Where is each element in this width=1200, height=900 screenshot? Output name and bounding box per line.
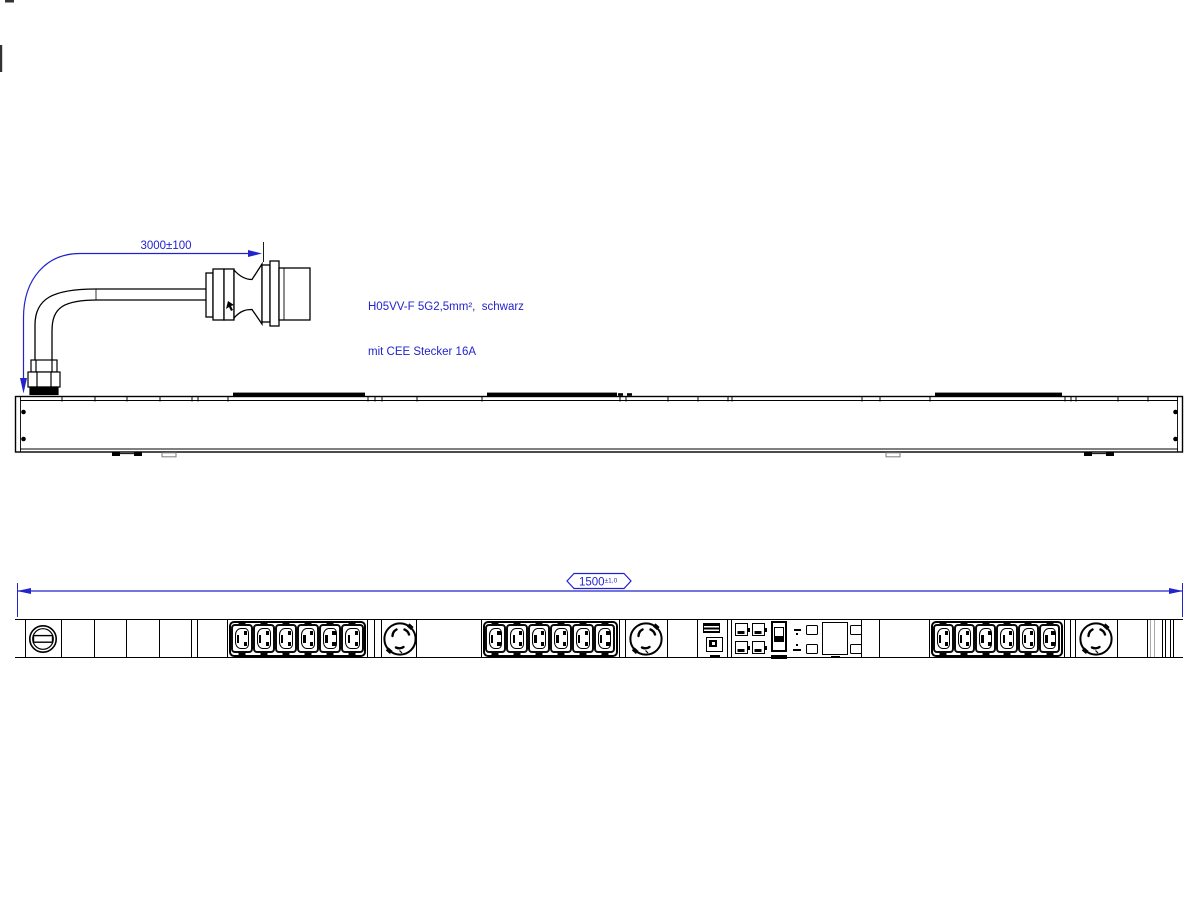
c13-group-frame [931, 621, 1063, 657]
cable-spec-line1: H05VV-F 5G2,5mm², schwarz [368, 300, 524, 315]
module-button [806, 625, 818, 635]
c13-face [510, 628, 524, 649]
c13-outlet [528, 624, 550, 653]
rj45-tab [765, 646, 767, 650]
panel-blank [862, 620, 880, 657]
c13-slot [325, 635, 327, 643]
screw-dot [21, 437, 26, 442]
c13-slot [563, 642, 566, 646]
c13-slot [988, 642, 991, 646]
c13-outlet [954, 624, 975, 653]
usb-a-port [771, 655, 787, 660]
c13-slot [281, 635, 283, 643]
c13-slot [288, 631, 291, 635]
c13-outlet [572, 624, 594, 653]
c13-face [532, 628, 546, 649]
c13-slot [606, 631, 609, 635]
c13-outlet-group [228, 620, 368, 657]
c13-face [279, 628, 293, 649]
module-button [850, 644, 862, 654]
c13-outlet [297, 624, 319, 653]
c13-slot [244, 642, 247, 646]
locking-outlet [628, 621, 664, 657]
indicator-mark [793, 649, 801, 651]
c13-face [1022, 628, 1035, 649]
display-screen [822, 622, 848, 655]
c13-slot [1045, 635, 1047, 643]
end-cap-line [1150, 620, 1151, 657]
ethernet-port [771, 621, 787, 652]
display-label [831, 656, 840, 658]
panel-blank [95, 620, 127, 657]
c13-slot [945, 631, 948, 635]
rj45-pins [738, 631, 745, 634]
c13-outlet [1039, 624, 1060, 653]
c13-slot [266, 642, 269, 646]
c13-outlet [253, 624, 275, 653]
vent-grille [703, 623, 720, 633]
c13-outlet [506, 624, 528, 653]
c13-slot [541, 631, 544, 635]
c13-face [1043, 628, 1056, 649]
c13-slot [541, 642, 544, 646]
fuse-holder [26, 622, 60, 656]
module-button [850, 625, 862, 635]
c13-outlet [231, 624, 253, 653]
c13-slot [585, 642, 588, 646]
panel-divider [375, 620, 382, 657]
c13-slot [491, 635, 493, 643]
c13-slot [1051, 642, 1054, 646]
panel-blank [1118, 620, 1148, 657]
screw-dot [1173, 410, 1178, 415]
c13-outlet [485, 624, 507, 653]
c13-slot [259, 635, 261, 643]
c13-slot [981, 635, 983, 643]
c13-slot [556, 635, 558, 643]
locking-outlet [382, 621, 416, 657]
arrowhead-right [248, 250, 262, 257]
c13-group-frame [483, 621, 618, 657]
end-cap-line [1154, 620, 1155, 657]
ethernet-jack [774, 627, 784, 642]
c13-slot [585, 631, 588, 635]
c13-face [554, 628, 568, 649]
arrowhead-left [17, 588, 31, 594]
c13-outlet [550, 624, 572, 653]
c13-slot [1030, 631, 1033, 635]
c13-outlet [975, 624, 996, 653]
c13-slot [1009, 642, 1012, 646]
rj45-port [735, 641, 748, 654]
c13-face [235, 628, 249, 649]
rj45-tab [748, 628, 750, 632]
c13-slot [310, 642, 313, 646]
c13-slot [534, 635, 536, 643]
c13-slot [332, 642, 335, 646]
arrowhead-down [20, 378, 27, 394]
locking-outlet [1078, 621, 1114, 657]
c13-outlet [341, 624, 363, 653]
end-cap-line [1173, 620, 1174, 657]
c13-slot [966, 631, 969, 635]
c13-face [958, 628, 971, 649]
screw-dot [21, 410, 26, 415]
c13-slot [348, 635, 350, 643]
c13-face [323, 628, 337, 649]
end-cap-line [1165, 620, 1166, 657]
dim-overall-length: 1500±1,0 [17, 574, 1183, 618]
controller-main-panel [732, 620, 862, 657]
c13-face [576, 628, 590, 649]
usb-b-pin [712, 642, 715, 645]
c13-face [598, 628, 612, 649]
c13-outlet [1018, 624, 1039, 653]
c13-slot [303, 635, 305, 643]
c13-slot [1024, 635, 1026, 643]
arrowhead-right [1169, 588, 1183, 594]
c13-slot [988, 631, 991, 635]
panel-blank [668, 620, 698, 657]
c13-face [1000, 628, 1013, 649]
drawing-canvas: 1500±1,0 3000±100 H05VV-F 5G2,5mm², schw… [0, 0, 1200, 900]
locking-outlet-panel [1076, 620, 1118, 657]
locking-outlet-panel [382, 620, 417, 657]
module-button [806, 644, 818, 654]
c13-slot [606, 642, 609, 646]
end-cap-left [15, 620, 26, 657]
c13-slot [966, 642, 969, 646]
rj45-port [752, 623, 765, 636]
c13-slot [1003, 635, 1005, 643]
panel-blank [160, 620, 192, 657]
c13-face [301, 628, 315, 649]
pdu-front-view [15, 619, 1183, 658]
c13-outlet [996, 624, 1017, 653]
side-view [16, 393, 1183, 457]
c13-slot [244, 631, 247, 635]
c13-face [979, 628, 992, 649]
indicator-mark [796, 633, 798, 635]
c13-slot [563, 631, 566, 635]
rj45-pins [755, 649, 762, 652]
outlet-bezel-strips [233, 393, 1062, 396]
end-cap-right [1148, 620, 1183, 657]
cable-gland [28, 360, 60, 395]
c13-slot [1009, 631, 1012, 635]
rj45-tab [765, 628, 767, 632]
cable-spec-text: H05VV-F 5G2,5mm², schwarz mit CEE Stecke… [368, 270, 524, 390]
edge-artifact [0, 45, 2, 72]
dim-value: 1500 [579, 577, 605, 589]
power-cable [35, 289, 206, 360]
mounting-tabs [112, 453, 1114, 457]
c13-slot [578, 635, 580, 643]
dim-label-1500: 1500±1,0 [567, 574, 631, 589]
end-cap-line [1170, 620, 1171, 657]
c13-outlet-group [482, 620, 620, 657]
rj45-port [752, 641, 765, 654]
indicator-mark [794, 629, 801, 631]
c13-slot [355, 642, 358, 646]
fuse-holder-panel [26, 620, 62, 657]
c13-face [937, 628, 950, 649]
panel-blank [198, 620, 228, 657]
rj45-pins [755, 631, 762, 634]
c13-outlet [594, 624, 616, 653]
c13-group-frame [229, 621, 366, 657]
c13-face [489, 628, 503, 649]
usb-b-port [706, 637, 723, 652]
lineart-layer: 1500±1,0 [0, 0, 1200, 900]
c13-slot [266, 631, 269, 635]
c13-slot [600, 635, 602, 643]
c13-slot [332, 631, 335, 635]
dim-tolerance: ±1,0 [605, 578, 618, 585]
end-cap-line [1162, 620, 1163, 657]
rj45-port [735, 623, 748, 636]
panel-blank [880, 620, 930, 657]
c13-slot [945, 642, 948, 646]
cable-length-text: 3000±100 [116, 239, 216, 254]
c13-slot [1030, 642, 1033, 646]
cee-plug [206, 261, 310, 326]
c13-slot [237, 635, 239, 643]
port-label [710, 655, 720, 658]
c13-slot [288, 642, 291, 646]
c13-outlet-group [930, 620, 1065, 657]
c13-slot [1051, 631, 1054, 635]
c13-slot [519, 631, 522, 635]
screw-dot [1173, 437, 1178, 442]
controller-aux-panel [698, 620, 728, 657]
rj45-pins [738, 649, 745, 652]
indicator-mark [796, 644, 798, 646]
c13-face [257, 628, 271, 649]
c13-outlet [933, 624, 954, 653]
edge-artifact [5, 0, 14, 3]
panel-blank [62, 620, 95, 657]
c13-face [345, 628, 359, 649]
panel-blank [127, 620, 160, 657]
c13-slot [310, 631, 313, 635]
cable-spec-line2: mit CEE Stecker 16A [368, 345, 524, 360]
c13-slot [939, 635, 941, 643]
panel-divider [368, 620, 375, 657]
c13-slot [497, 631, 500, 635]
ethernet-pins [775, 636, 783, 641]
c13-slot [960, 635, 962, 643]
c13-outlet [275, 624, 297, 653]
rj45-tab [748, 646, 750, 650]
c13-slot [519, 642, 522, 646]
c13-slot [355, 631, 358, 635]
c13-slot [497, 642, 500, 646]
c13-outlet [319, 624, 341, 653]
locking-outlet-panel [626, 620, 668, 657]
panel-blank [417, 620, 482, 657]
c13-slot [513, 635, 515, 643]
